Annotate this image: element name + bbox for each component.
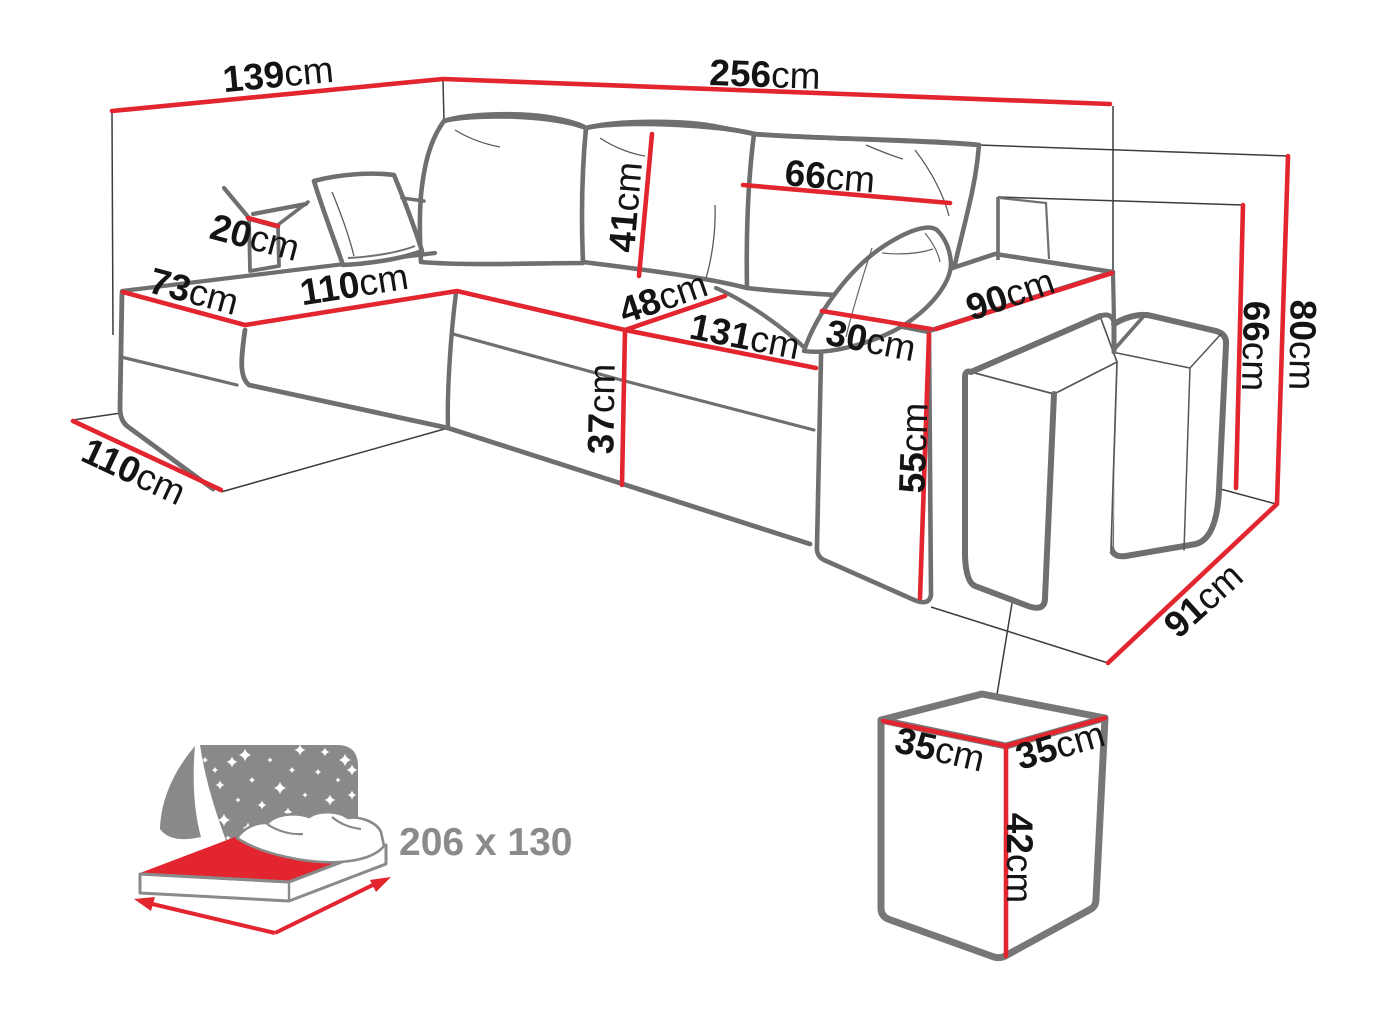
svg-text:55cm: 55cm <box>891 402 935 494</box>
svg-text:66cm: 66cm <box>783 152 877 200</box>
svg-text:206 x 130: 206 x 130 <box>399 821 573 864</box>
svg-text:41cm: 41cm <box>601 160 650 254</box>
svg-text:256cm: 256cm <box>709 52 821 97</box>
svg-text:80cm: 80cm <box>1281 299 1324 390</box>
svg-text:42cm: 42cm <box>999 813 1040 903</box>
svg-text:37cm: 37cm <box>580 363 623 454</box>
svg-text:66cm: 66cm <box>1234 300 1277 391</box>
